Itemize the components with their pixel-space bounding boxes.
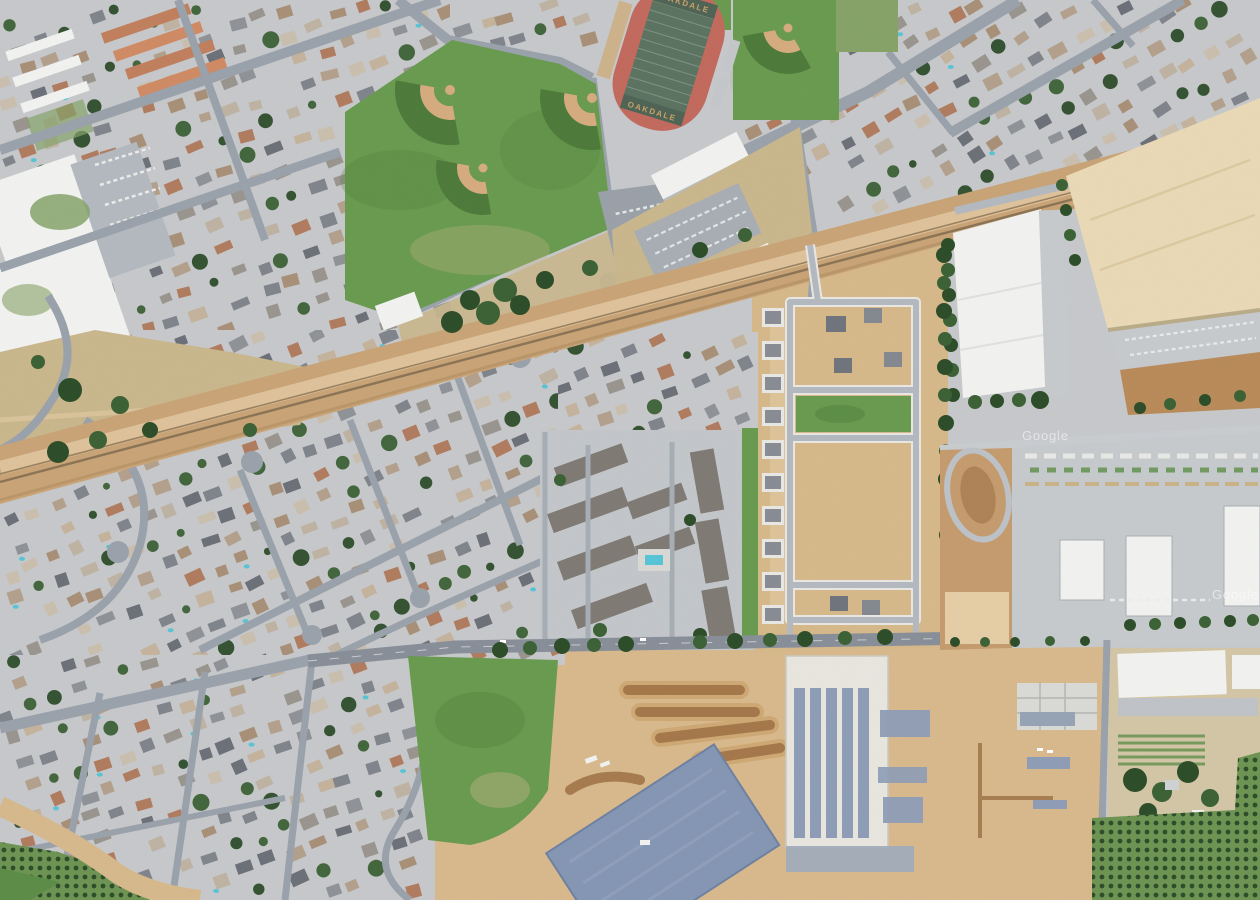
noise-overlay [0,0,1260,900]
satellite-map-canvas[interactable]: OAKDALE OAKDALE [0,0,1260,900]
